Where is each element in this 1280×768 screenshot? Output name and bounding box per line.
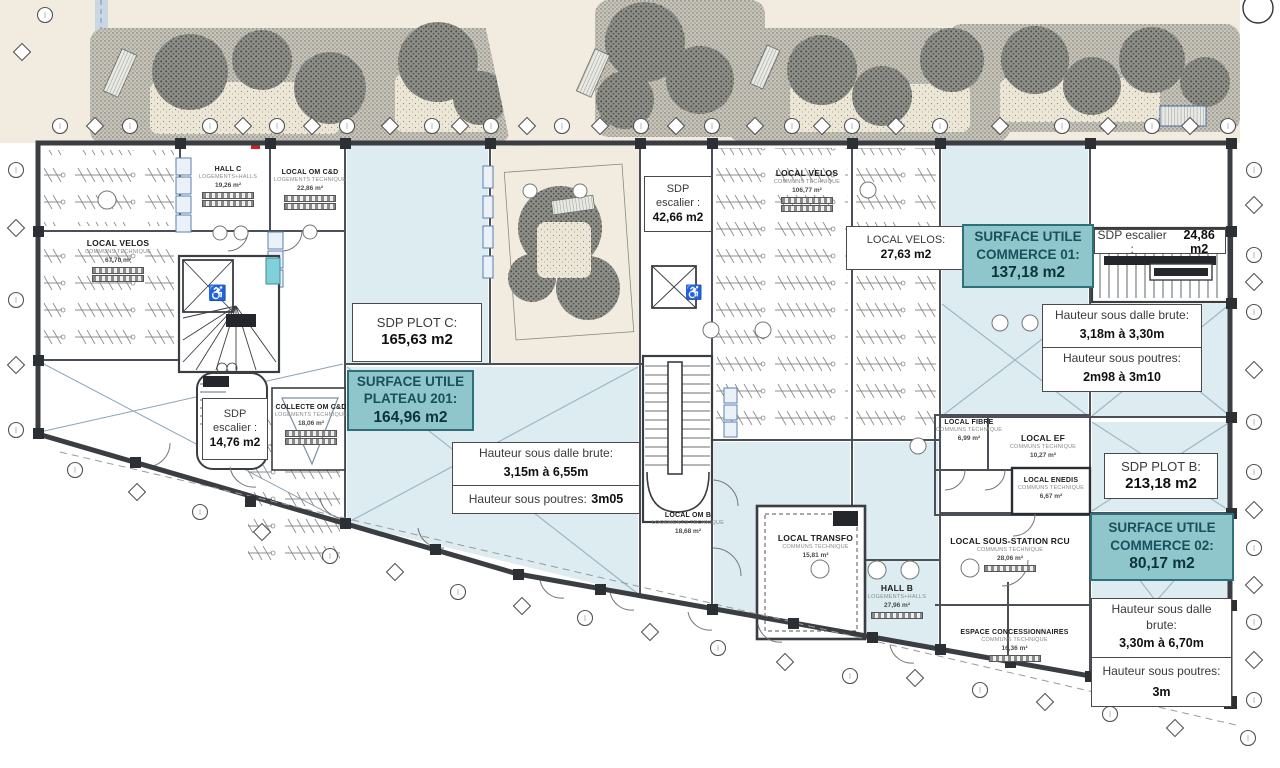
room-label-hall-b: HALL B LOGEMENTS+HALLS 27,96 m² <box>858 583 936 620</box>
h-com02-poutres-value: 3m <box>1152 685 1170 699</box>
sdp-plot-c-title: SDP PLOT C: <box>353 315 481 331</box>
commerce02-area: 80,17 m2 <box>1092 554 1232 574</box>
commerce02-line1: SURFACE UTILE <box>1092 519 1232 537</box>
surface-commerce-01-box: SURFACE UTILE COMMERCE 01: 137,18 m2 <box>962 224 1094 288</box>
room-label-fibre: LOCAL FIBRE COMMUNS TECHNIQUE 6,99 m² <box>933 418 1005 444</box>
hall-c-name: HALL C <box>188 165 268 174</box>
h-com01-poutres-label: Hauteur sous poutres: <box>1047 351 1197 367</box>
surface-plateau-line1: SURFACE UTILE <box>349 373 472 391</box>
sdp-escalier-b-box: SDP escalier : 24,86 m2 <box>1094 229 1226 254</box>
commerce02-line2: COMMERCE 02: <box>1092 537 1232 555</box>
velos-b-area: 27,63 m2 <box>847 247 965 262</box>
hauteur-dalle-value: 3,15m à 6,55m <box>504 465 589 479</box>
velos-a-category: COMMUNS TECHNIQUE <box>72 249 164 256</box>
collecte-area: 18,06 m² <box>272 420 350 429</box>
sdp-esc-a-l2: escalier : <box>203 422 267 436</box>
surface-plateau-201-box: SURFACE UTILE PLATEAU 201: 164,96 m2 <box>347 370 474 431</box>
h-com01-poutres-value: 2m98 à 3m10 <box>1083 370 1161 384</box>
room-label-om-cd: LOCAL OM C&D LOGEMENTS TECHNIQUE 22,86 m… <box>268 168 352 211</box>
wheelchair-icon: ♿ <box>685 284 702 301</box>
fibre-area: 6,99 m² <box>933 435 1005 444</box>
stair-core-left <box>179 256 279 372</box>
h-com01-dalle-label: Hauteur sous dalle brute: <box>1047 308 1197 324</box>
enedis-name: LOCAL ENEDIS <box>1016 476 1086 485</box>
sdp-esc-a-area: 14,76 m2 <box>203 435 267 450</box>
hall-b-category: LOGEMENTS+HALLS <box>858 594 936 601</box>
hauteur-plateau-box: Hauteur sous dalle brute: 3,15m à 6,55m … <box>452 442 640 514</box>
transfo-category: COMMUNS TECHNIQUE <box>768 544 863 551</box>
om-cd-category: LOGEMENTS TECHNIQUE <box>268 177 352 184</box>
surface-plateau-area: 164,96 m2 <box>349 408 472 428</box>
velos-a-area: 67,70 m² <box>72 257 164 266</box>
sdp-esc-a-l1: SDP <box>203 408 267 422</box>
fibre-name: LOCAL FIBRE <box>933 418 1005 427</box>
hall-c-area: 19,26 m² <box>188 182 268 191</box>
surface-commerce-02-box: SURFACE UTILE COMMERCE 02: 80,17 m2 <box>1090 513 1234 581</box>
hall-b-area: 27,96 m² <box>858 602 936 611</box>
h-com02-poutres-label: Hauteur sous poutres: <box>1102 664 1220 678</box>
h-com02-dalle-label: Hauteur sous dalle brute: <box>1096 602 1227 633</box>
wheelchair-icon: ♿ <box>208 284 227 302</box>
sdp-plot-b-box: SDP PLOT B: 213,18 m2 <box>1104 453 1218 499</box>
hauteur-commerce-02-box: Hauteur sous dalle brute: 3,30m à 6,70m … <box>1091 598 1232 707</box>
room-label-concession: ESPACE CONCESSIONNAIRES COMMUNS TECHNIQU… <box>942 628 1087 663</box>
hauteur-commerce-01-box: Hauteur sous dalle brute: 3,18m à 3,30m … <box>1042 304 1202 392</box>
room-label-velos-c: LOCAL VELOS COMMUNS TECHNIQUE 106,77 m² <box>752 168 862 213</box>
enedis-category: COMMUNS TECHNIQUE <box>1016 485 1086 492</box>
sdp-esc-c-l1: SDP <box>645 183 711 197</box>
velos-c-area: 106,77 m² <box>752 187 862 196</box>
rcu-name: LOCAL SOUS-STATION RCU <box>935 536 1085 547</box>
room-label-enedis: LOCAL ENEDIS COMMUNS TECHNIQUE 6,67 m² <box>1016 476 1086 502</box>
enedis-area: 6,67 m² <box>1016 493 1086 502</box>
sdp-plot-b-area: 213,18 m2 <box>1105 475 1217 494</box>
sdp-plot-c-area: 165,63 m2 <box>353 331 481 350</box>
sdp-esc-c-l2: escalier : <box>645 197 711 211</box>
north-arrow <box>1243 0 1273 23</box>
sdp-escalier-c-box: SDP escalier : 42,66 m2 <box>644 176 712 232</box>
sdp-esc-c-area: 42,66 m2 <box>645 210 711 225</box>
room-label-hall-c: HALL C LOGEMENTS+HALLS 19,26 m² <box>188 165 268 208</box>
floor-plan-page: ♿ ♿ <box>0 0 1280 768</box>
ef-category: COMMUNS TECHNIQUE <box>1002 444 1084 451</box>
sdp-escalier-a-box: SDP escalier : 14,76 m2 <box>202 398 268 460</box>
collecte-category: LOGEMENTS TECHNIQUE <box>272 412 350 419</box>
om-b-area: 18,68 m² <box>648 528 728 537</box>
transfo-name: LOCAL TRANSFO <box>768 533 863 544</box>
om-b-category: LOGEMENTS TECHNIQUE <box>648 520 728 527</box>
ef-area: 10,27 m² <box>1002 452 1084 461</box>
sdp-esc-b-label: SDP escalier : <box>1095 228 1169 256</box>
collecte-name: COLLECTE OM C&D <box>272 403 350 412</box>
commerce01-area: 137,18 m2 <box>964 263 1092 283</box>
velos-c-name: LOCAL VELOS <box>752 168 862 179</box>
hauteur-poutres-value: 3m05 <box>591 492 623 506</box>
room-label-ef: LOCAL EF COMMUNS TECHNIQUE 10,27 m² <box>1002 433 1084 461</box>
info-marker <box>266 258 280 284</box>
room-label-transfo: LOCAL TRANSFO COMMUNS TECHNIQUE 15,81 m² <box>768 533 863 561</box>
fibre-category: COMMUNS TECHNIQUE <box>933 427 1005 434</box>
ef-name: LOCAL EF <box>1002 433 1084 444</box>
stair-core-center <box>643 356 712 522</box>
sdp-plot-b-title: SDP PLOT B: <box>1105 459 1217 475</box>
concession-category: COMMUNS TECHNIQUE <box>942 637 1087 644</box>
local-velos-b-box: LOCAL VELOS: 27,63 m2 <box>846 226 966 270</box>
rcu-area: 28,06 m² <box>935 555 1085 564</box>
h-com02-dalle-value: 3,30m à 6,70m <box>1119 636 1204 650</box>
hall-b-name: HALL B <box>858 583 936 594</box>
h-com01-dalle-value: 3,18m à 3,30m <box>1080 327 1165 341</box>
hauteur-dalle-label: Hauteur sous dalle brute: <box>457 446 635 462</box>
om-b-name: LOCAL OM B <box>648 511 728 520</box>
courtyard <box>492 146 640 364</box>
hauteur-poutres-label: Hauteur sous poutres: <box>469 492 587 506</box>
room-label-rcu: LOCAL SOUS-STATION RCU COMMUNS TECHNIQUE… <box>935 536 1085 573</box>
surface-plateau-line2: PLATEAU 201: <box>349 390 472 408</box>
sdp-esc-b-value: 24,86 m2 <box>1173 228 1225 256</box>
om-cd-name: LOCAL OM C&D <box>268 168 352 177</box>
sdp-plot-c-box: SDP PLOT C: 165,63 m2 <box>352 303 482 362</box>
velos-b-title: LOCAL VELOS: <box>847 234 965 248</box>
commerce01-line2: COMMERCE 01: <box>964 246 1092 264</box>
hall-c-category: LOGEMENTS+HALLS <box>188 174 268 181</box>
rcu-category: COMMUNS TECHNIQUE <box>935 547 1085 554</box>
room-label-collecte: COLLECTE OM C&D LOGEMENTS TECHNIQUE 18,0… <box>272 403 350 446</box>
concession-name: ESPACE CONCESSIONNAIRES <box>942 628 1087 637</box>
velos-a-name: LOCAL VELOS <box>72 238 164 249</box>
room-label-velos-a: LOCAL VELOS COMMUNS TECHNIQUE 67,70 m² <box>72 238 164 283</box>
concession-area: 16,36 m² <box>942 645 1087 654</box>
velos-c-category: COMMUNS TECHNIQUE <box>752 179 862 186</box>
om-cd-area: 22,86 m² <box>268 185 352 194</box>
commerce01-line1: SURFACE UTILE <box>964 228 1092 246</box>
transfo-area: 15,81 m² <box>768 552 863 561</box>
room-label-om-b: LOCAL OM B LOGEMENTS TECHNIQUE 18,68 m² <box>648 511 728 537</box>
